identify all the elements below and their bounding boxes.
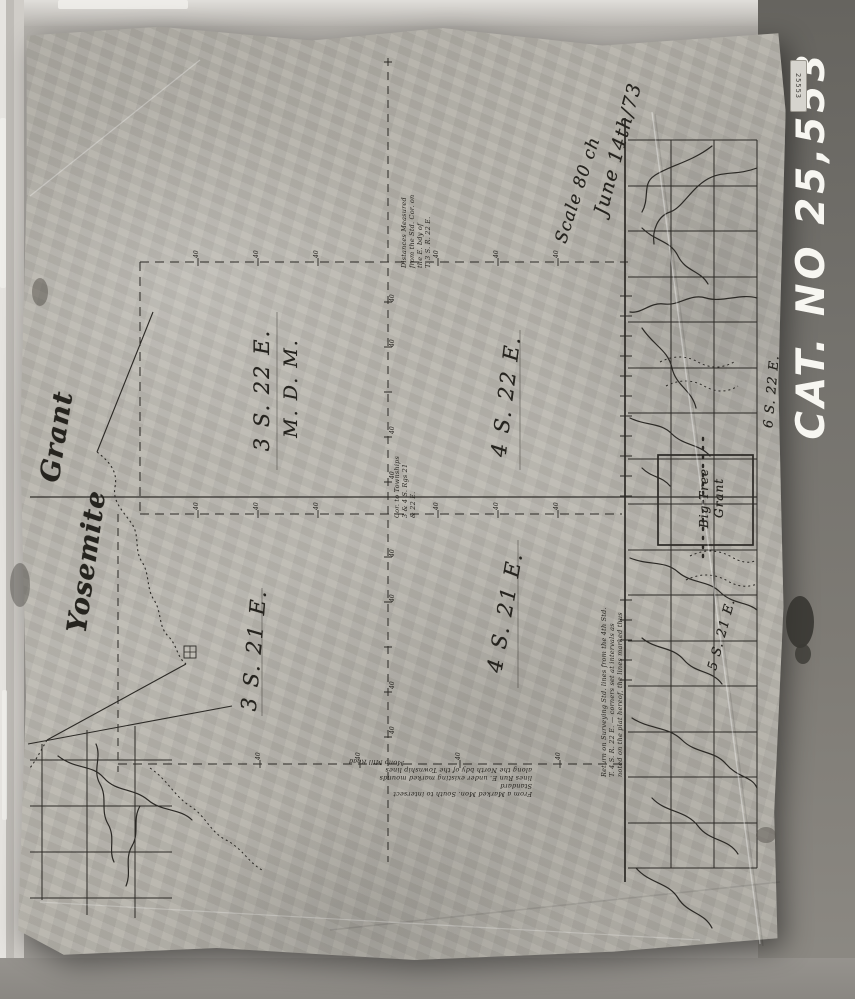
note-line: lines Run E. under existing marked mound… bbox=[372, 774, 532, 782]
note-line: noted on the plat hereof, the lines mark… bbox=[616, 597, 624, 777]
survey-note-center: Cor. to Townships 3 & 4 S. Rgs 21 & 22 E… bbox=[393, 446, 417, 518]
negative-sticker-number: 25553 bbox=[794, 63, 802, 109]
note-line: from the Std. Cor. on bbox=[408, 180, 416, 268]
survey-note-top: Distances Measured from the Std. Cor. on… bbox=[400, 180, 432, 268]
note-line: From a Marked Mon. South to intersect St… bbox=[372, 782, 532, 798]
note-line: & 22 E. bbox=[409, 446, 417, 518]
light-streak bbox=[0, 118, 6, 288]
note-line: the E. bdy of bbox=[416, 180, 424, 268]
negative-sticker: 25553 bbox=[790, 60, 807, 112]
note-line: along the North bdy of the Township line… bbox=[372, 766, 532, 774]
big-tree-grant-label: Big Tree Grant bbox=[697, 453, 727, 543]
meridian-label: M. D. M. bbox=[280, 333, 302, 443]
photo: 4040404040404040404040404040404040404040… bbox=[0, 0, 855, 999]
township-label-3s22e: 3 S. 22 E. bbox=[250, 320, 274, 460]
note-line: Return on Surveying Std. lines from the … bbox=[600, 597, 608, 777]
light-streak bbox=[2, 690, 7, 820]
note-line: 3 & 4 S. Rgs 21 bbox=[401, 446, 409, 518]
photo-edge-bottom bbox=[0, 958, 855, 999]
big-tree-grant-line1: Big Tree bbox=[697, 453, 712, 543]
big-tree-grant-line2: Grant bbox=[712, 453, 727, 543]
survey-note-bottom: From a Marked Mon. South to intersect St… bbox=[372, 766, 532, 798]
note-line: T. 4 S. R. 22 E. — corners set at interv… bbox=[608, 597, 616, 777]
light-streak bbox=[58, 0, 188, 9]
note-line: T. 3 S. R. 22 E. bbox=[424, 180, 432, 268]
note-line: Cor. to Townships bbox=[393, 446, 401, 518]
note-line: Distances Measured bbox=[400, 180, 408, 268]
survey-note-east: Return on Surveying Std. lines from the … bbox=[600, 597, 624, 777]
